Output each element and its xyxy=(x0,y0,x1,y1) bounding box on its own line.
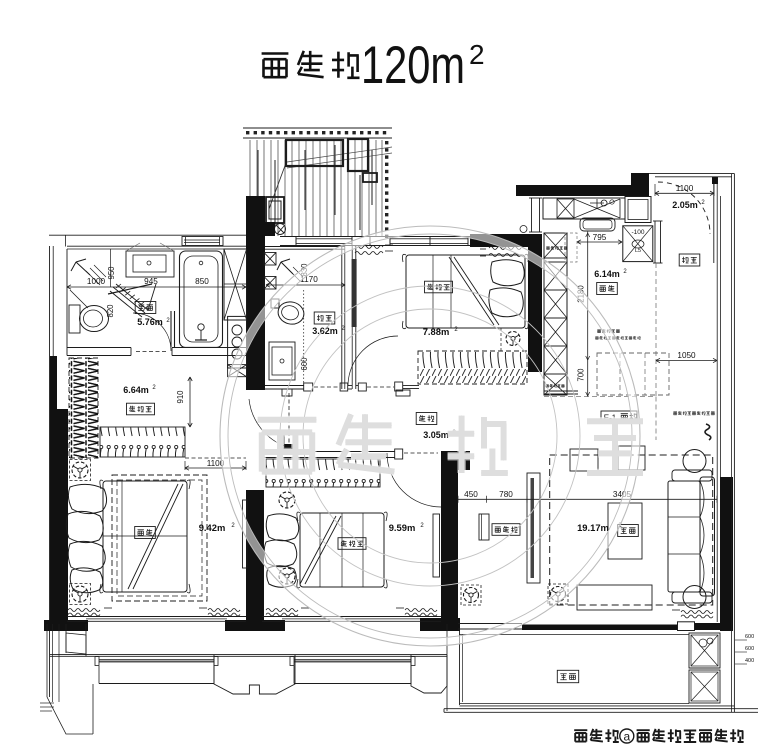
svg-text:a: a xyxy=(623,730,630,744)
svg-text:19.17m: 19.17m xyxy=(577,522,609,533)
svg-text:850: 850 xyxy=(195,277,209,286)
svg-text:3.62m: 3.62m xyxy=(312,326,338,336)
svg-text:9.59m: 9.59m xyxy=(389,522,416,533)
svg-text:450: 450 xyxy=(464,490,478,499)
svg-text:700: 700 xyxy=(577,368,586,382)
svg-text:910: 910 xyxy=(176,390,185,404)
svg-text:780: 780 xyxy=(499,490,513,499)
svg-text:1050: 1050 xyxy=(677,351,696,360)
svg-text:6.64m: 6.64m xyxy=(123,385,149,395)
svg-text:795: 795 xyxy=(593,233,607,242)
svg-text:1100: 1100 xyxy=(676,184,694,193)
svg-text:7.88m: 7.88m xyxy=(423,326,450,337)
svg-text:2.05m: 2.05m xyxy=(672,200,698,210)
svg-text:120m: 120m xyxy=(361,36,465,95)
svg-text:9.42m: 9.42m xyxy=(199,522,226,533)
svg-text:3.05m: 3.05m xyxy=(423,430,449,440)
svg-text:2: 2 xyxy=(469,39,485,70)
svg-text:1000: 1000 xyxy=(87,277,106,286)
svg-text:5.76m: 5.76m xyxy=(137,317,163,327)
svg-text:400: 400 xyxy=(745,658,754,664)
svg-text:L5: L5 xyxy=(635,248,641,254)
svg-text:950: 950 xyxy=(107,266,116,280)
svg-text:600: 600 xyxy=(745,646,754,652)
svg-text:820: 820 xyxy=(106,304,115,318)
svg-text:-100: -100 xyxy=(631,229,644,236)
svg-text:6.14m: 6.14m xyxy=(594,269,620,279)
svg-text:600: 600 xyxy=(745,634,754,640)
